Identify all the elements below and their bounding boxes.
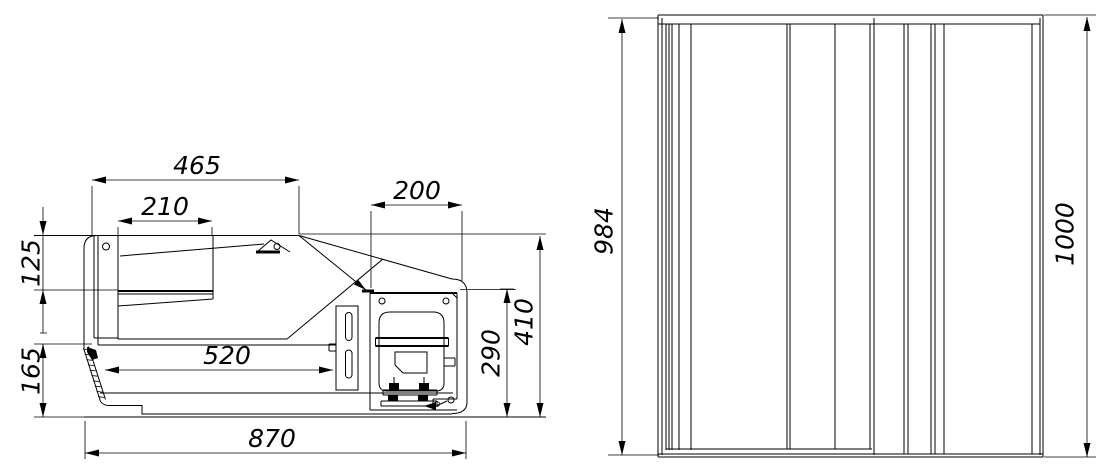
- dim-label-984: 984: [590, 207, 619, 255]
- back-wall-outer-edge: [84, 236, 97, 349]
- dim-465: 465: [92, 151, 299, 235]
- dim-200: 200: [371, 176, 462, 288]
- front-view: [658, 15, 1043, 457]
- compartment-screw-right: [443, 298, 449, 304]
- dim-870: 870: [85, 421, 466, 459]
- base-nut-left: [388, 395, 398, 401]
- bottom-right-corner: [452, 402, 467, 414]
- canopy-inner-line: [120, 244, 264, 256]
- compressor-body: [379, 346, 444, 391]
- side-view: [34, 236, 546, 418]
- glass-outer-diagonal: [299, 236, 452, 280]
- lamp-box-step: [118, 291, 213, 306]
- front-right-lines: [904, 18, 1040, 455]
- dim-label-165: 165: [17, 347, 46, 395]
- dim-label-210: 210: [141, 192, 189, 221]
- bracket-slot-lower: [346, 350, 353, 378]
- compartment-screw-left: [379, 298, 385, 304]
- dim-label-1000: 1000: [1051, 202, 1080, 266]
- technical-drawing: 465 210 200 125 165: [0, 0, 1108, 474]
- base-nut-right: [418, 395, 428, 401]
- compressor-band: [376, 338, 449, 346]
- dim-label-520: 520: [203, 341, 251, 370]
- dim-label-290: 290: [477, 329, 506, 377]
- dim-label-410: 410: [510, 298, 539, 346]
- mount-bolts: [394, 377, 424, 383]
- screw-hole-left: [103, 243, 110, 250]
- foot-bolt-hole: [448, 397, 454, 403]
- dim-520: 520: [105, 341, 333, 374]
- front-horizontals: [658, 24, 1043, 454]
- compressor-dome: [379, 312, 444, 345]
- discharge-fitting: [444, 358, 455, 366]
- front-left-frame-lines: [662, 18, 691, 455]
- opening-diagonal: [287, 259, 383, 339]
- front-middle-lines: [787, 18, 874, 455]
- lamp-box-sides: [118, 236, 213, 339]
- front-view-dimensions: 984 1000: [590, 15, 1097, 457]
- screw-hole-gusset: [274, 244, 280, 250]
- bracket-slot-upper: [346, 313, 353, 341]
- kick-strip-outer: [84, 348, 453, 414]
- compressor-band-sides: [376, 338, 449, 346]
- base-arrow: [424, 402, 436, 410]
- dim-290: 290: [460, 289, 516, 417]
- dim-label-125: 125: [17, 239, 46, 287]
- dim-125-165: 125 165: [17, 207, 119, 417]
- terminal-box: [395, 352, 427, 373]
- mount-nut-left: [389, 383, 399, 390]
- hinge-detail: [87, 347, 98, 360]
- dim-label-465: 465: [173, 151, 221, 180]
- mount-nut-right: [419, 383, 429, 390]
- dim-1000: 1000: [1044, 15, 1096, 457]
- dim-210: 210: [118, 192, 212, 235]
- top-right-corner: [452, 279, 467, 293]
- drawing-canvas: 465 210 200 125 165: [0, 0, 1108, 474]
- back-wall-inner-lines: [94, 236, 118, 345]
- dim-label-200: 200: [393, 176, 441, 205]
- dim-984: 984: [590, 18, 660, 455]
- dim-label-870: 870: [248, 424, 296, 453]
- gusset-triangle: [257, 240, 290, 252]
- front-outline: [658, 15, 1043, 457]
